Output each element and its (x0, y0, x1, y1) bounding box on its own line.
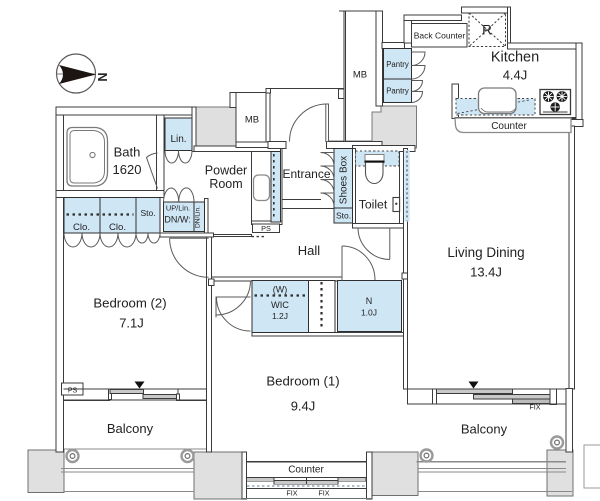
svg-text:9.4J: 9.4J (291, 399, 316, 414)
svg-text:Sto.: Sto. (140, 208, 155, 218)
svg-text:MB: MB (353, 70, 367, 81)
svg-text:1.2J: 1.2J (272, 311, 288, 321)
svg-text:UP/Lin.: UP/Lin. (166, 203, 190, 212)
svg-text:7.1J: 7.1J (119, 316, 144, 331)
svg-text:PS: PS (68, 388, 78, 395)
svg-text:N: N (366, 296, 373, 306)
svg-text:Powder: Powder (205, 163, 247, 177)
svg-text:Toilet: Toilet (359, 198, 388, 212)
svg-text:Clo.: Clo. (109, 222, 126, 233)
svg-text:N: N (95, 72, 109, 81)
svg-text:13.4J: 13.4J (470, 265, 502, 280)
svg-text:Counter: Counter (491, 121, 527, 132)
svg-text:Bedroom (1): Bedroom (1) (266, 374, 339, 389)
svg-text:Pantry: Pantry (386, 87, 409, 96)
svg-text:Back Counter: Back Counter (414, 31, 466, 41)
svg-text:R: R (482, 23, 492, 38)
svg-text:Counter: Counter (288, 465, 324, 476)
svg-text:Balcony: Balcony (107, 421, 154, 436)
svg-text:WIC: WIC (271, 300, 289, 310)
svg-text:Lin.: Lin. (170, 134, 186, 145)
svg-text:DN/Lin.: DN/Lin. (195, 206, 202, 228)
svg-text:Hall: Hall (298, 243, 321, 258)
svg-text:FIX: FIX (529, 403, 540, 412)
svg-text:PS: PS (261, 224, 271, 233)
svg-text:Bedroom (2): Bedroom (2) (93, 296, 166, 311)
svg-text:Living Dining: Living Dining (447, 245, 524, 260)
svg-text:Clo.: Clo. (73, 222, 90, 233)
svg-text:4.4J: 4.4J (503, 68, 528, 83)
svg-text:(W): (W) (273, 285, 288, 295)
svg-text:Sto.: Sto. (336, 211, 351, 221)
svg-text:Bath: Bath (114, 145, 141, 160)
svg-text:Kitchen: Kitchen (491, 50, 539, 66)
svg-text:DN/W:: DN/W: (164, 215, 190, 225)
svg-text:FIX: FIX (286, 489, 297, 498)
svg-text:Entrance: Entrance (282, 167, 330, 181)
svg-text:Room: Room (209, 177, 242, 191)
svg-text:Balcony: Balcony (461, 422, 508, 437)
svg-text:Pantry: Pantry (386, 60, 409, 69)
svg-text:FIX: FIX (318, 489, 329, 498)
svg-text:1620: 1620 (113, 162, 142, 177)
svg-text:Shoes Box: Shoes Box (338, 156, 349, 204)
svg-text:1.0J: 1.0J (361, 308, 377, 318)
svg-text:MB: MB (245, 115, 259, 126)
